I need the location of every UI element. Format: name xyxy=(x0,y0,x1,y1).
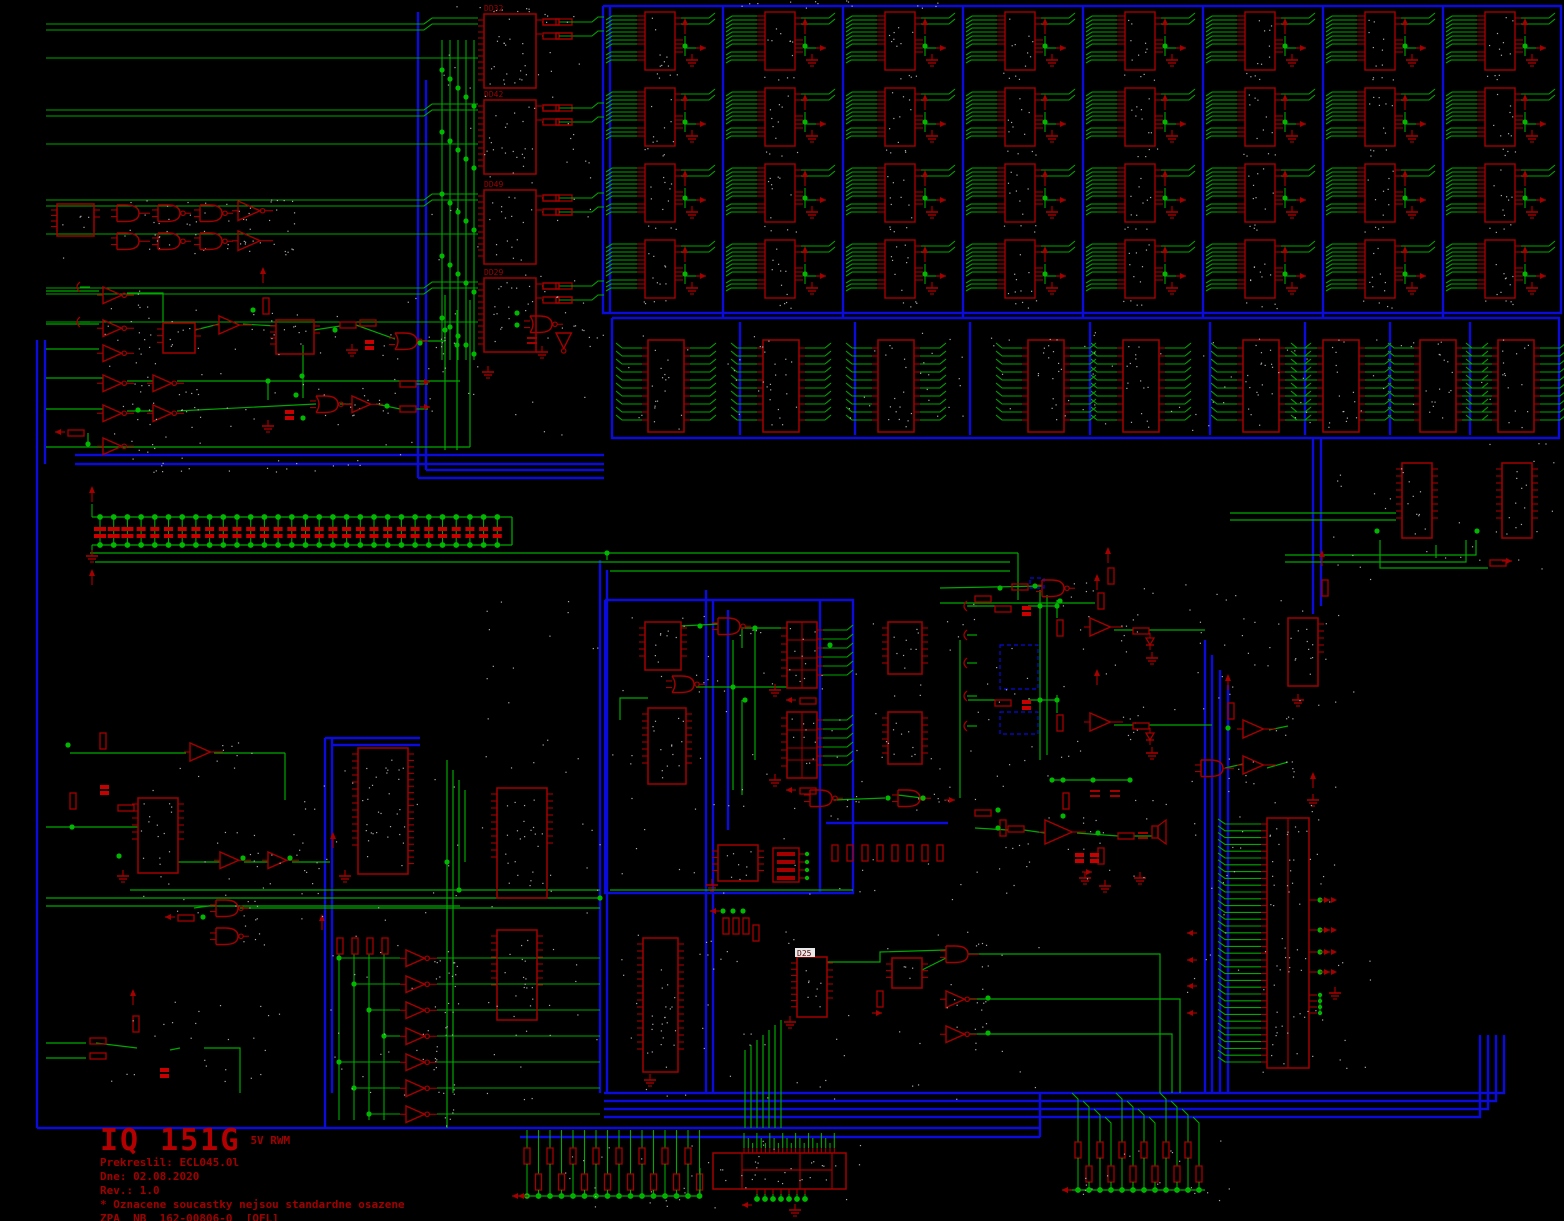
junction-dot xyxy=(1374,528,1379,533)
junction-dot xyxy=(444,859,449,864)
text-speck xyxy=(789,669,790,670)
text-speck xyxy=(1105,423,1106,424)
text-speck xyxy=(1499,75,1500,76)
text-speck xyxy=(583,330,584,331)
text-speck xyxy=(793,737,794,738)
text-speck xyxy=(316,862,317,863)
text-speck xyxy=(653,730,654,731)
text-speck xyxy=(658,661,659,662)
text-speck xyxy=(171,812,172,813)
text-speck xyxy=(1014,274,1015,275)
text-speck xyxy=(271,855,272,856)
text-speck xyxy=(556,297,557,298)
text-speck xyxy=(523,821,524,822)
text-speck xyxy=(1293,1016,1294,1017)
text-speck xyxy=(284,329,285,330)
text-speck xyxy=(886,150,887,151)
text-speck xyxy=(324,785,325,786)
text-speck xyxy=(749,1044,750,1045)
text-speck xyxy=(804,678,805,679)
text-speck xyxy=(928,400,929,401)
text-speck xyxy=(905,150,906,151)
text-speck xyxy=(525,148,526,149)
text-speck xyxy=(1135,354,1136,355)
text-speck xyxy=(874,890,875,891)
text-speck xyxy=(227,407,228,408)
capacitor xyxy=(1022,612,1031,616)
junction-dot xyxy=(1225,725,1230,730)
text-speck xyxy=(1298,630,1299,631)
text-speck xyxy=(1292,718,1293,719)
junction-dot xyxy=(754,1196,760,1202)
text-speck xyxy=(275,392,276,393)
text-speck xyxy=(1441,342,1442,343)
text-speck xyxy=(1194,823,1195,824)
text-speck xyxy=(1504,373,1505,374)
text-speck xyxy=(1147,421,1148,422)
text-speck xyxy=(655,401,656,402)
junction-dot xyxy=(135,407,140,412)
text-speck xyxy=(1373,253,1374,254)
text-speck xyxy=(1411,346,1412,347)
text-speck xyxy=(145,214,146,215)
junction-dot xyxy=(152,514,158,520)
text-speck xyxy=(784,838,785,839)
text-speck xyxy=(1250,76,1251,77)
text-speck xyxy=(132,404,133,405)
text-speck xyxy=(568,612,569,613)
text-speck xyxy=(1253,761,1254,762)
text-speck xyxy=(532,148,533,149)
text-speck xyxy=(962,416,963,417)
text-speck xyxy=(891,204,892,205)
junction-dot xyxy=(463,342,468,347)
text-speck xyxy=(187,224,188,225)
text-speck xyxy=(228,220,229,221)
text-speck xyxy=(636,848,637,849)
text-speck xyxy=(894,637,895,638)
text-speck xyxy=(322,916,323,917)
text-speck xyxy=(1504,215,1505,216)
text-speck xyxy=(1257,173,1258,174)
text-speck xyxy=(1007,151,1008,152)
text-speck xyxy=(894,754,895,755)
text-speck xyxy=(1198,672,1199,673)
text-speck xyxy=(956,1099,957,1100)
text-speck xyxy=(630,763,631,764)
text-speck xyxy=(1388,204,1389,205)
text-speck xyxy=(486,756,487,757)
text-speck xyxy=(888,743,889,744)
junction-dot xyxy=(138,514,144,520)
text-speck xyxy=(368,840,369,841)
text-speck xyxy=(1506,17,1507,18)
text-speck xyxy=(901,734,902,735)
capacitor xyxy=(137,534,146,538)
text-speck xyxy=(661,368,662,369)
text-speck xyxy=(590,346,591,347)
text-speck xyxy=(587,912,588,913)
text-speck xyxy=(585,161,586,162)
text-speck xyxy=(383,410,384,411)
text-speck xyxy=(1280,969,1281,970)
text-speck xyxy=(160,864,161,865)
text-speck xyxy=(763,381,764,382)
text-speck xyxy=(542,883,543,884)
text-speck xyxy=(1259,339,1260,340)
text-speck xyxy=(676,229,677,230)
text-speck xyxy=(1056,419,1057,420)
text-speck xyxy=(1490,399,1491,400)
text-speck xyxy=(816,996,817,997)
capacitor xyxy=(108,527,120,531)
text-speck xyxy=(249,213,250,214)
text-speck xyxy=(284,200,285,201)
text-speck xyxy=(694,872,695,873)
text-speck xyxy=(253,1038,254,1039)
text-speck xyxy=(890,197,891,198)
junction-dot xyxy=(471,165,476,170)
junction-dot xyxy=(1037,603,1042,608)
text-speck xyxy=(1429,412,1430,413)
text-speck xyxy=(441,339,442,340)
text-speck xyxy=(1393,79,1394,80)
text-speck xyxy=(1126,388,1127,389)
text-speck xyxy=(189,328,190,329)
junction-dot xyxy=(125,542,131,548)
text-speck xyxy=(1126,626,1127,627)
text-speck xyxy=(772,683,773,684)
text-speck xyxy=(892,260,893,261)
text-speck xyxy=(1194,978,1195,979)
text-speck xyxy=(139,307,140,308)
text-speck xyxy=(249,907,250,908)
text-speck xyxy=(169,803,170,804)
text-speck xyxy=(682,618,683,619)
text-speck xyxy=(1270,274,1271,275)
text-speck xyxy=(257,906,258,907)
text-speck xyxy=(809,763,810,764)
text-speck xyxy=(947,1007,948,1008)
text-speck xyxy=(1137,631,1138,632)
text-speck xyxy=(1247,375,1248,376)
text-speck xyxy=(573,134,574,135)
text-speck xyxy=(912,32,913,33)
text-speck xyxy=(724,691,725,692)
text-speck xyxy=(148,821,149,822)
component-label: DD49 xyxy=(484,180,503,189)
text-speck xyxy=(1269,57,1270,58)
text-speck xyxy=(138,294,139,295)
text-speck xyxy=(920,684,921,685)
schematic-page: DD32DD42DD49DD29D25 IQ 151G5V RWM Prekre… xyxy=(0,0,1564,1221)
text-speck xyxy=(204,861,205,862)
capacitor xyxy=(178,534,187,538)
text-speck xyxy=(645,149,646,150)
text-speck xyxy=(1038,373,1039,374)
text-speck xyxy=(489,219,490,220)
text-speck xyxy=(138,305,139,306)
text-speck xyxy=(1510,53,1511,54)
junction-dot xyxy=(152,542,158,548)
capacitor xyxy=(233,527,242,531)
text-speck xyxy=(739,879,740,880)
text-speck xyxy=(775,138,776,139)
text-speck xyxy=(834,1098,835,1099)
text-speck xyxy=(1393,171,1394,172)
text-speck xyxy=(143,896,144,897)
text-speck xyxy=(385,767,386,768)
junction-dot xyxy=(447,262,452,267)
text-speck xyxy=(88,217,89,218)
text-speck xyxy=(670,1008,671,1009)
text-speck xyxy=(1261,352,1262,353)
text-speck xyxy=(896,411,897,412)
text-speck xyxy=(1015,291,1016,292)
capacitor xyxy=(233,534,242,538)
text-speck xyxy=(1503,362,1504,363)
text-speck xyxy=(509,318,510,319)
text-speck xyxy=(671,744,672,745)
text-speck xyxy=(454,786,455,787)
text-speck xyxy=(394,379,395,380)
text-speck xyxy=(1372,286,1373,287)
text-speck xyxy=(1147,200,1148,201)
capacitor xyxy=(328,527,337,531)
text-speck xyxy=(704,1048,705,1049)
text-speck xyxy=(141,385,142,386)
junction-dot xyxy=(248,542,254,548)
text-speck xyxy=(534,800,535,801)
text-speck xyxy=(597,647,598,648)
text-speck xyxy=(631,1037,632,1038)
text-speck xyxy=(898,142,899,143)
text-speck xyxy=(272,313,273,314)
text-speck xyxy=(299,332,300,333)
junction-dot xyxy=(316,514,322,520)
text-speck xyxy=(664,265,665,266)
text-speck xyxy=(367,856,368,857)
text-speck xyxy=(1336,365,1337,366)
text-speck xyxy=(1503,42,1504,43)
text-speck xyxy=(1489,228,1490,229)
junction-dot xyxy=(442,327,447,332)
junction-dot xyxy=(85,441,90,446)
text-speck xyxy=(1293,859,1294,860)
text-speck xyxy=(508,307,509,308)
text-speck xyxy=(493,149,494,150)
text-speck xyxy=(771,40,772,41)
text-speck xyxy=(948,407,949,408)
capacitor xyxy=(219,527,228,531)
text-speck xyxy=(890,229,891,230)
text-speck xyxy=(501,147,502,148)
text-speck xyxy=(398,769,399,770)
text-speck xyxy=(779,178,780,179)
text-speck xyxy=(137,419,138,420)
text-speck xyxy=(671,99,672,100)
text-speck xyxy=(960,385,961,386)
text-speck xyxy=(1508,200,1509,201)
text-speck xyxy=(225,895,226,896)
text-speck xyxy=(1418,515,1419,516)
text-speck xyxy=(671,183,672,184)
text-speck xyxy=(513,151,514,152)
text-speck xyxy=(873,623,874,624)
text-speck xyxy=(982,989,983,990)
junction-dot xyxy=(1402,195,1407,200)
text-speck xyxy=(1369,103,1370,104)
text-speck xyxy=(1008,183,1009,184)
text-speck xyxy=(706,942,707,943)
text-speck xyxy=(403,843,404,844)
text-speck xyxy=(452,1112,453,1113)
junction-dot xyxy=(1402,271,1407,276)
text-speck xyxy=(1510,224,1511,225)
text-speck xyxy=(770,109,771,110)
text-speck xyxy=(380,813,381,814)
text-speck xyxy=(1511,301,1512,302)
text-speck xyxy=(487,678,488,679)
text-speck xyxy=(271,320,272,321)
text-speck xyxy=(1346,421,1347,422)
text-speck xyxy=(919,1043,920,1044)
text-speck xyxy=(549,636,550,637)
text-speck xyxy=(448,1003,449,1004)
text-speck xyxy=(660,66,661,67)
text-speck xyxy=(820,983,821,984)
text-speck xyxy=(1141,413,1142,414)
text-speck xyxy=(982,966,983,967)
text-speck xyxy=(531,182,532,183)
text-speck xyxy=(1369,282,1370,283)
text-speck xyxy=(903,302,904,303)
text-speck xyxy=(681,415,682,416)
junction-dot xyxy=(439,129,444,134)
junction-dot xyxy=(1402,119,1407,124)
text-speck xyxy=(376,832,377,833)
text-speck xyxy=(1028,36,1029,37)
text-speck xyxy=(788,95,789,96)
text-speck xyxy=(815,742,816,743)
junction-dot xyxy=(467,542,473,548)
text-speck xyxy=(648,253,649,254)
text-speck xyxy=(487,611,488,612)
text-speck xyxy=(1278,844,1279,845)
text-speck xyxy=(515,995,516,996)
text-speck xyxy=(996,667,997,668)
text-speck xyxy=(488,1002,489,1003)
junction-dot xyxy=(193,542,199,548)
text-speck xyxy=(198,409,199,410)
text-speck xyxy=(780,33,781,34)
junction-dot xyxy=(351,1085,356,1090)
text-speck xyxy=(1130,196,1131,197)
junction-dot xyxy=(463,280,468,285)
text-speck xyxy=(767,1097,768,1098)
text-speck xyxy=(468,393,469,394)
text-speck xyxy=(1154,80,1155,81)
text-speck xyxy=(511,247,512,248)
dip-switch-bar xyxy=(777,876,795,880)
text-speck xyxy=(663,155,664,156)
text-speck xyxy=(114,433,115,434)
text-speck xyxy=(654,421,655,422)
text-speck xyxy=(477,366,478,367)
text-speck xyxy=(494,1054,495,1055)
text-speck xyxy=(1014,693,1015,694)
text-speck xyxy=(1373,150,1374,151)
text-speck xyxy=(949,787,950,788)
text-speck xyxy=(889,345,890,346)
text-speck xyxy=(372,833,373,834)
text-speck xyxy=(1388,189,1389,190)
text-speck xyxy=(227,248,228,249)
text-speck xyxy=(674,997,675,998)
text-speck xyxy=(752,1179,753,1180)
text-speck xyxy=(654,407,655,408)
capacitor xyxy=(260,527,269,531)
text-speck xyxy=(198,776,199,777)
text-speck xyxy=(906,640,907,641)
text-speck xyxy=(1137,156,1138,157)
text-speck xyxy=(911,77,912,78)
text-speck xyxy=(445,368,446,369)
capacitor xyxy=(94,534,106,538)
text-speck xyxy=(847,800,848,801)
text-speck xyxy=(653,136,654,137)
text-speck xyxy=(243,219,244,220)
text-speck xyxy=(1035,225,1036,226)
junction-dot xyxy=(179,542,185,548)
text-speck xyxy=(191,393,192,394)
text-speck xyxy=(491,142,492,143)
junction-dot xyxy=(412,542,418,548)
text-speck xyxy=(631,798,632,799)
text-speck xyxy=(839,888,840,889)
junction-dot xyxy=(439,191,444,196)
text-speck xyxy=(638,935,639,936)
text-speck xyxy=(652,277,653,278)
text-speck xyxy=(522,959,523,960)
junction-dot xyxy=(207,514,213,520)
junction-dot xyxy=(453,542,459,548)
junction-dot xyxy=(316,542,322,548)
text-speck xyxy=(352,783,353,784)
text-speck xyxy=(550,1035,551,1036)
text-speck xyxy=(813,723,814,724)
text-speck xyxy=(792,41,793,42)
text-speck xyxy=(1195,414,1196,415)
capacitor xyxy=(287,527,296,531)
text-speck xyxy=(1496,264,1497,265)
text-speck xyxy=(382,355,383,356)
text-speck xyxy=(1253,185,1254,186)
text-speck xyxy=(778,121,779,122)
text-speck xyxy=(1248,176,1249,177)
capacitor xyxy=(479,527,488,531)
text-speck xyxy=(494,66,495,67)
text-speck xyxy=(1269,30,1270,31)
text-speck xyxy=(1112,366,1113,367)
text-speck xyxy=(726,711,727,712)
text-speck xyxy=(1503,149,1504,150)
text-speck xyxy=(1505,300,1506,301)
text-speck xyxy=(187,202,188,203)
text-speck xyxy=(1099,843,1100,844)
text-speck xyxy=(1171,411,1172,412)
text-speck xyxy=(939,801,940,802)
